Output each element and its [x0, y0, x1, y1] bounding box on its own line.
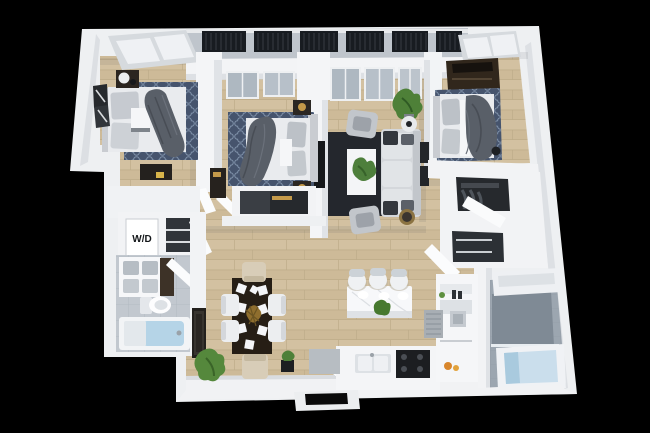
svg-text:W/D: W/D — [132, 234, 151, 245]
